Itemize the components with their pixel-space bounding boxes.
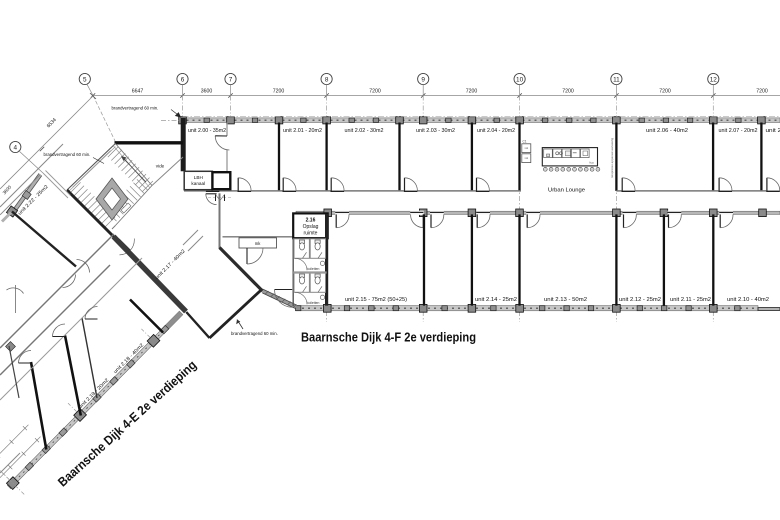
svg-text:5: 5 (83, 76, 87, 83)
svg-text:kanaal: kanaal (191, 181, 205, 186)
svg-text:11: 11 (613, 76, 620, 83)
svg-text:12: 12 (710, 76, 718, 83)
svg-text:unit 2.02 - 30m2: unit 2.02 - 30m2 (345, 128, 384, 134)
svg-text:7200: 7200 (273, 88, 285, 94)
svg-text:7: 7 (229, 76, 233, 83)
svg-text:unit 2.07 - 20m2: unit 2.07 - 20m2 (719, 128, 758, 134)
svg-text:toiletten: toiletten (308, 267, 320, 271)
svg-text:unit 2.15 - 75m2 (50+25): unit 2.15 - 75m2 (50+25) (345, 297, 407, 303)
svg-text:2.16: 2.16 (306, 218, 316, 224)
svg-text:10: 10 (516, 76, 524, 83)
svg-text:C1: C1 (522, 139, 526, 143)
svg-text:unit 2.03 - 30m2: unit 2.03 - 30m2 (416, 128, 455, 134)
svg-text:unit 2.04 - 20m2: unit 2.04 - 20m2 (477, 128, 515, 134)
svg-text:7200: 7200 (369, 88, 381, 94)
svg-text:7200: 7200 (562, 88, 574, 94)
svg-text:unit 2.12 - 25m2: unit 2.12 - 25m2 (619, 297, 661, 303)
svg-text:unit 2.13 - 50m2: unit 2.13 - 50m2 (544, 297, 587, 303)
svg-text:unit 2.0: unit 2.0 (766, 128, 780, 134)
svg-text:frigo: frigo (589, 161, 595, 165)
svg-text:mk: mk (255, 241, 261, 246)
svg-text:unit 2.14 - 25m2: unit 2.14 - 25m2 (475, 297, 517, 303)
svg-text:Urban Lounge: Urban Lounge (548, 188, 585, 194)
svg-text:unit 2.06 - 40m2: unit 2.06 - 40m2 (646, 128, 688, 134)
svg-text:6647: 6647 (132, 88, 144, 94)
svg-text:ruimte: ruimte (304, 231, 318, 237)
svg-text:brandvertragend 60 min.: brandvertragend 60 min. (44, 152, 91, 157)
svg-text:7200: 7200 (466, 88, 478, 94)
svg-text:vide: vide (156, 164, 165, 169)
svg-text:toiletten: toiletten (308, 301, 320, 305)
svg-text:unit 2.11 - 25m2: unit 2.11 - 25m2 (670, 297, 711, 303)
svg-text:Opslag: Opslag (303, 224, 319, 230)
svg-text:unit 2.00 - 35m2: unit 2.00 - 35m2 (188, 128, 226, 134)
svg-text:6: 6 (181, 76, 185, 83)
svg-text:Baarnsche Dijk 4-F 2e verdiepi: Baarnsche Dijk 4-F 2e verdieping (301, 330, 476, 345)
svg-text:nespresso apparaat aanwezig: nespresso apparaat aanwezig (610, 138, 614, 178)
svg-text:9: 9 (421, 76, 425, 83)
svg-text:unit 2.10 - 40m2: unit 2.10 - 40m2 (727, 297, 769, 303)
svg-text:LBH: LBH (194, 175, 203, 180)
svg-text:3600: 3600 (201, 88, 213, 94)
svg-text:brandvertragend 60 min.: brandvertragend 60 min. (231, 331, 278, 336)
svg-text:brandvertragend 60 min.: brandvertragend 60 min. (112, 106, 159, 111)
svg-text:7200: 7200 (659, 88, 671, 94)
svg-text:8: 8 (325, 76, 329, 83)
svg-text:4: 4 (14, 144, 18, 151)
svg-text:7200: 7200 (756, 88, 768, 94)
svg-text:unit 2.01 - 20m2: unit 2.01 - 20m2 (283, 128, 322, 134)
